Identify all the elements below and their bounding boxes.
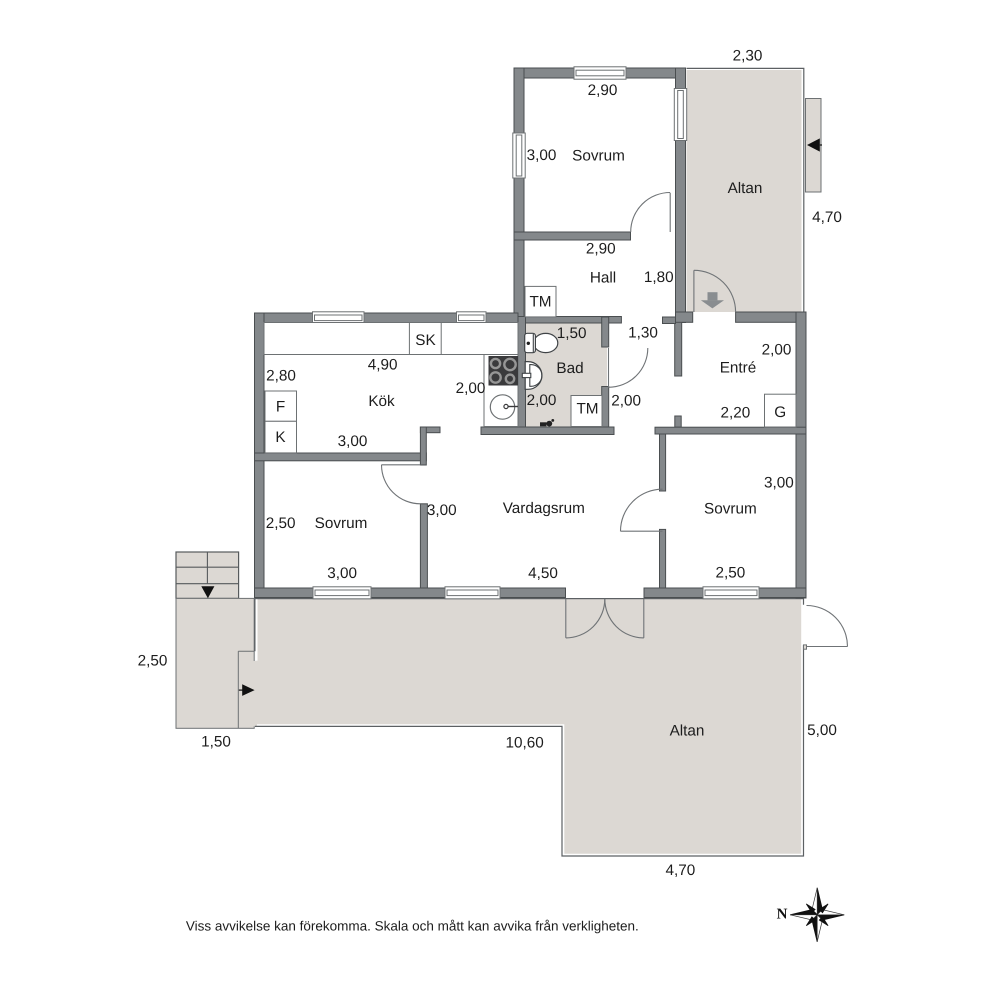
svg-text:Hall: Hall (590, 270, 616, 287)
svg-text:1,80: 1,80 (644, 269, 674, 286)
svg-text:4,70: 4,70 (666, 862, 696, 879)
svg-text:2,50: 2,50 (266, 515, 296, 532)
svg-text:1,50: 1,50 (201, 734, 231, 751)
svg-text:2,00: 2,00 (527, 392, 557, 409)
svg-text:2,80: 2,80 (266, 368, 296, 385)
svg-text:1,50: 1,50 (557, 325, 587, 342)
svg-text:10,60: 10,60 (505, 735, 543, 752)
svg-text:4,90: 4,90 (368, 357, 398, 374)
svg-text:3,00: 3,00 (338, 433, 368, 450)
svg-text:2,00: 2,00 (762, 342, 792, 359)
svg-text:F: F (276, 399, 285, 416)
svg-text:Sovrum: Sovrum (572, 148, 625, 165)
svg-text:4,50: 4,50 (528, 565, 558, 582)
svg-text:2,90: 2,90 (586, 241, 616, 258)
svg-text:2,20: 2,20 (721, 404, 751, 421)
svg-text:Sovrum: Sovrum (704, 501, 757, 518)
svg-text:3,00: 3,00 (327, 565, 357, 582)
svg-text:2,30: 2,30 (733, 48, 763, 65)
svg-text:Vardagsrum: Vardagsrum (503, 500, 585, 517)
svg-text:2,50: 2,50 (716, 565, 746, 582)
svg-text:Altan: Altan (670, 723, 705, 740)
svg-text:TM: TM (576, 401, 598, 418)
svg-text:Viss avvikelse kan förekomma.: Viss avvikelse kan förekomma. Skala och … (186, 919, 639, 934)
svg-text:2,50: 2,50 (138, 653, 168, 670)
svg-text:5,00: 5,00 (807, 722, 837, 739)
svg-text:N: N (777, 906, 788, 922)
svg-text:2,90: 2,90 (588, 82, 618, 99)
svg-text:TM: TM (529, 294, 551, 311)
svg-text:1,30: 1,30 (628, 325, 658, 342)
svg-text:Kök: Kök (368, 393, 395, 410)
svg-text:Sovrum: Sovrum (315, 515, 368, 532)
svg-text:2,00: 2,00 (456, 380, 486, 397)
svg-text:3,00: 3,00 (427, 502, 457, 519)
svg-text:3,00: 3,00 (764, 475, 794, 492)
svg-text:Bad: Bad (556, 360, 583, 377)
svg-text:G: G (774, 404, 786, 421)
svg-text:Altan: Altan (728, 180, 763, 197)
svg-text:2,00: 2,00 (611, 393, 641, 410)
svg-text:SK: SK (415, 332, 436, 349)
svg-text:4,70: 4,70 (812, 209, 842, 226)
svg-text:3,00: 3,00 (527, 147, 557, 164)
svg-text:K: K (275, 429, 286, 446)
svg-text:Entré: Entré (720, 360, 757, 377)
